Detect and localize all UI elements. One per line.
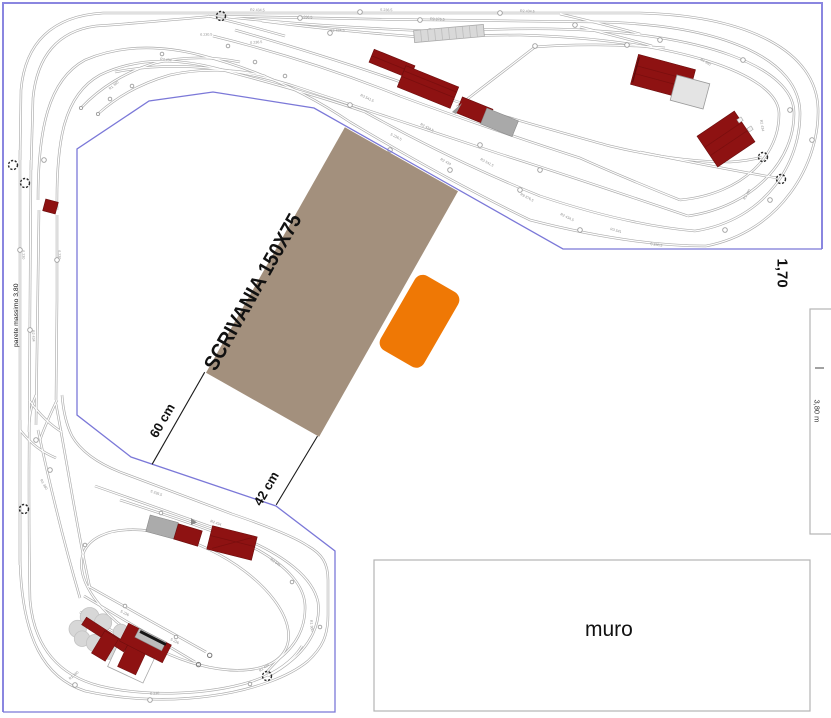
svg-text:R1 360: R1 360 <box>742 188 751 200</box>
svg-text:S 236: S 236 <box>120 609 130 617</box>
svg-text:R1 360: R1 360 <box>700 57 712 66</box>
svg-text:S 230: S 230 <box>150 691 160 696</box>
svg-text:S 236.5: S 236.5 <box>150 489 163 497</box>
svg-text:R3 541.5: R3 541.5 <box>480 157 495 167</box>
svg-text:R3 541: R3 541 <box>610 227 622 234</box>
svg-text:S 236.5: S 236.5 <box>390 132 403 141</box>
svg-text:R3 541: R3 541 <box>269 558 281 568</box>
svg-text:R2 434.5: R2 434.5 <box>250 8 265 12</box>
svg-text:R1 360: R1 360 <box>309 620 314 632</box>
svg-text:R2 434.5: R2 434.5 <box>560 212 575 222</box>
svg-text:R2 434: R2 434 <box>759 119 765 131</box>
svg-text:R1 360: R1 360 <box>39 479 48 491</box>
svg-text:R2 434.5: R2 434.5 <box>520 9 535 14</box>
svg-text:R1 360: R1 360 <box>108 80 119 91</box>
svg-text:S 236.5: S 236.5 <box>650 242 663 248</box>
svg-text:S 236.5: S 236.5 <box>380 8 392 12</box>
svg-text:R2 434: R2 434 <box>440 157 452 166</box>
svg-text:S 230.5: S 230.5 <box>200 32 213 37</box>
svg-text:R9 876.5: R9 876.5 <box>430 17 445 22</box>
svg-text:S 236.5: S 236.5 <box>250 40 263 45</box>
svg-text:R3 541.5: R3 541.5 <box>360 93 375 103</box>
